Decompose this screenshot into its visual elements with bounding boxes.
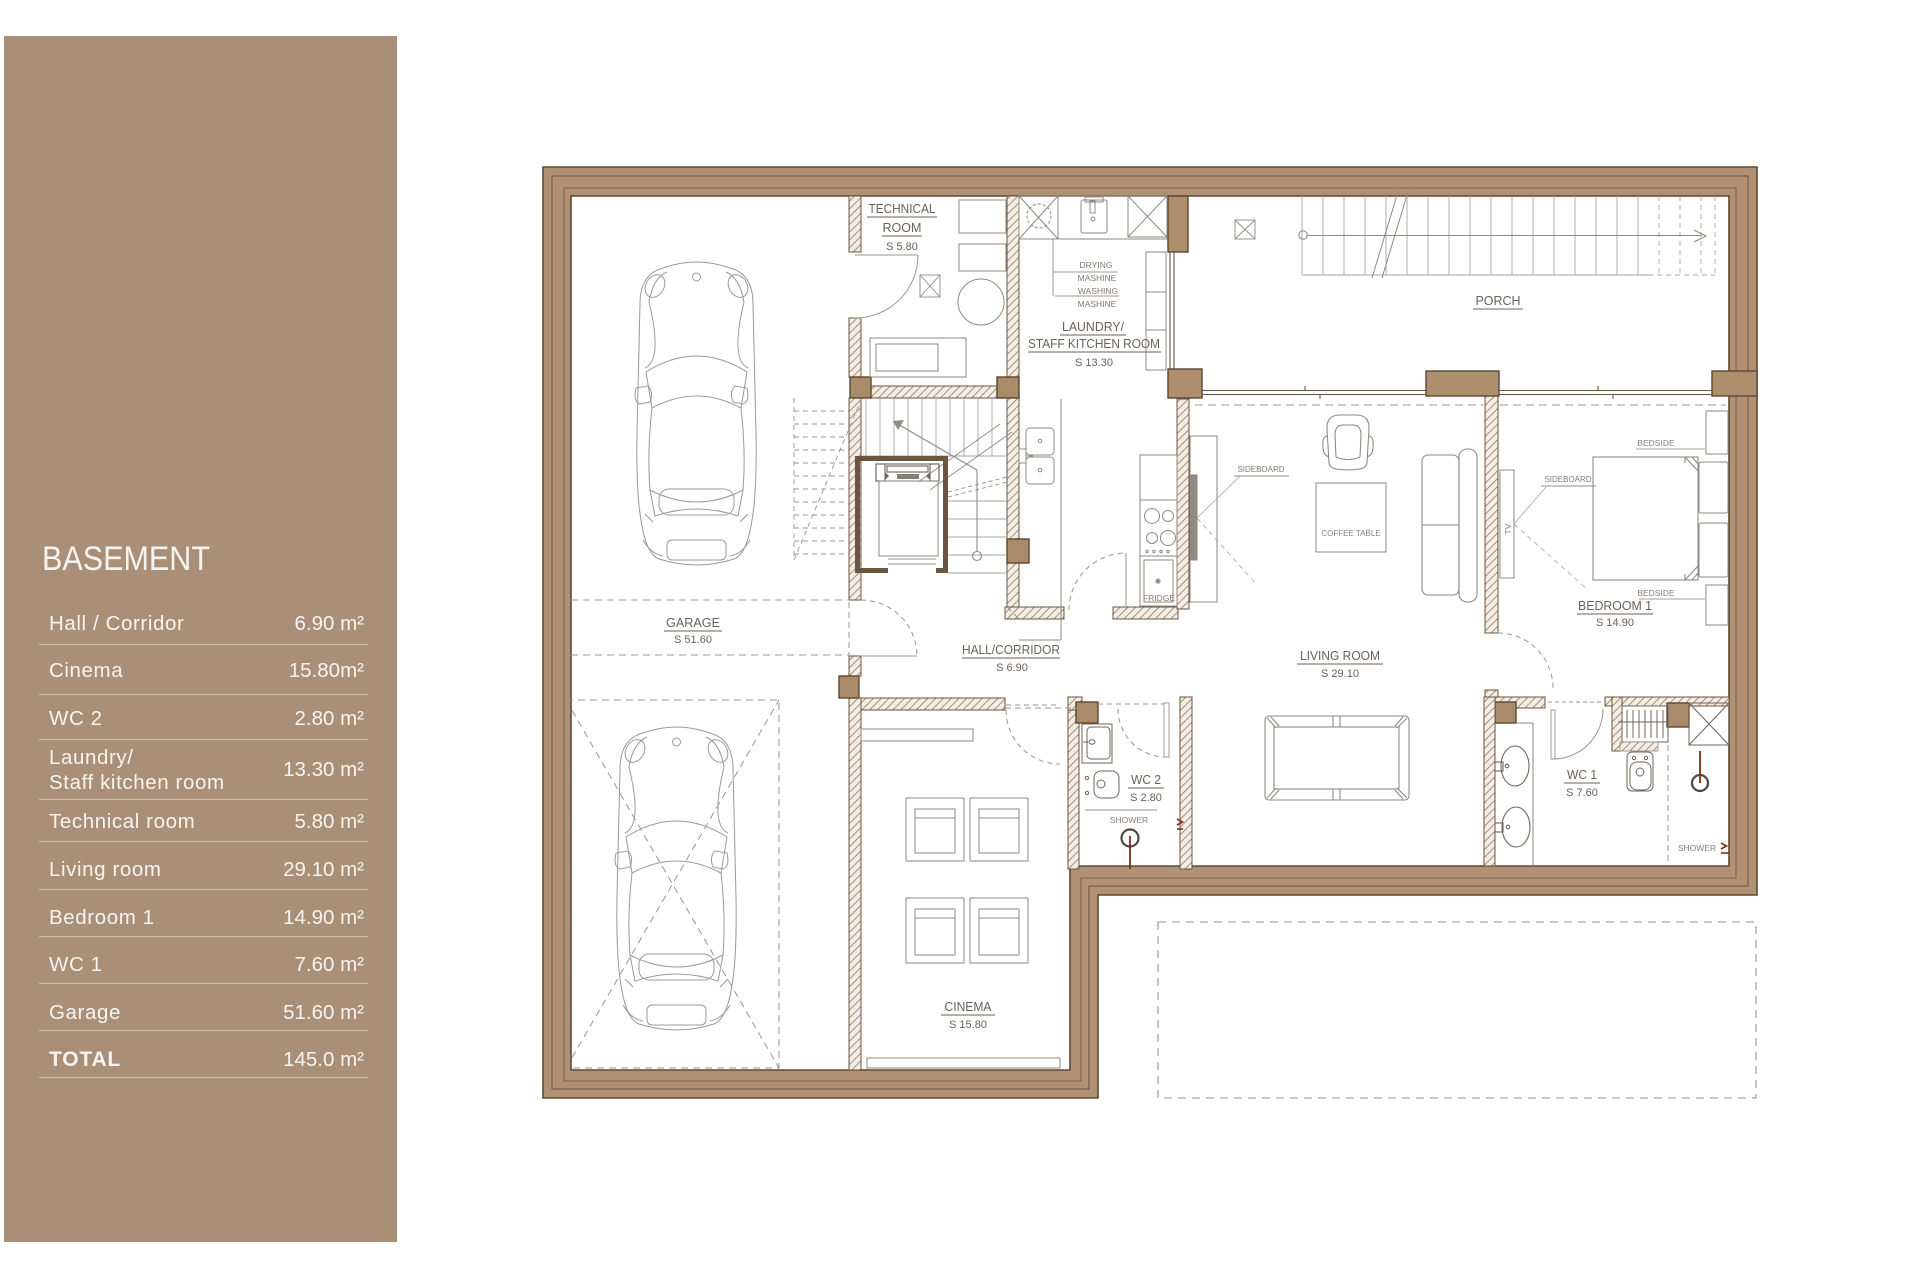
svg-text:WC 1: WC 1 bbox=[1567, 767, 1597, 782]
svg-text:MASHINE: MASHINE bbox=[1078, 273, 1117, 283]
svg-text:145.0 m²: 145.0 m² bbox=[283, 1048, 364, 1071]
svg-text:14.90 m²: 14.90 m² bbox=[283, 906, 364, 929]
svg-text:Bedroom 1: Bedroom 1 bbox=[49, 906, 155, 929]
svg-text:S 7.60: S 7.60 bbox=[1566, 787, 1598, 799]
svg-text:SIDEBOARD: SIDEBOARD bbox=[1544, 475, 1591, 484]
svg-text:STAFF KITCHEN ROOM: STAFF KITCHEN ROOM bbox=[1028, 336, 1160, 351]
svg-text:TECHNICAL: TECHNICAL bbox=[869, 201, 936, 216]
svg-text:WASHING: WASHING bbox=[1078, 286, 1118, 296]
svg-text:15.80m²: 15.80m² bbox=[289, 659, 364, 682]
svg-text:29.10 m²: 29.10 m² bbox=[283, 858, 364, 881]
svg-text:WC 2: WC 2 bbox=[49, 707, 103, 730]
svg-text:Laundry/: Laundry/ bbox=[49, 746, 134, 769]
svg-text:13.30 m²: 13.30 m² bbox=[283, 758, 364, 781]
svg-text:DRYING: DRYING bbox=[1080, 260, 1113, 270]
svg-text:Hall / Corridor: Hall / Corridor bbox=[49, 612, 184, 635]
svg-text:S 5.80: S 5.80 bbox=[886, 241, 918, 253]
svg-text:BEDROOM 1: BEDROOM 1 bbox=[1578, 598, 1652, 613]
svg-text:GARAGE: GARAGE bbox=[666, 615, 720, 630]
svg-text:S 15.80: S 15.80 bbox=[949, 1019, 987, 1031]
svg-text:SIDEBOARD: SIDEBOARD bbox=[1237, 465, 1284, 474]
svg-text:6.90 m²: 6.90 m² bbox=[295, 612, 365, 635]
svg-text:FRIDGE: FRIDGE bbox=[1143, 593, 1175, 603]
svg-text:ROOM: ROOM bbox=[883, 220, 922, 235]
svg-text:SHOWER: SHOWER bbox=[1110, 815, 1148, 825]
svg-text:BEDSIDE: BEDSIDE bbox=[1637, 438, 1675, 448]
svg-text:TOTAL: TOTAL bbox=[49, 1048, 121, 1071]
svg-text:SHOWER: SHOWER bbox=[1678, 843, 1716, 853]
svg-text:7.60 m²: 7.60 m² bbox=[295, 953, 365, 976]
svg-text:LAUNDRY/: LAUNDRY/ bbox=[1062, 319, 1124, 334]
svg-text:CINEMA: CINEMA bbox=[945, 999, 992, 1014]
svg-text:2.80 m²: 2.80 m² bbox=[295, 707, 365, 730]
svg-text:Staff kitchen room: Staff kitchen room bbox=[49, 771, 225, 794]
svg-text:WC 1: WC 1 bbox=[49, 953, 103, 976]
svg-text:S 51.60: S 51.60 bbox=[674, 634, 712, 646]
svg-text:S 29.10: S 29.10 bbox=[1321, 668, 1359, 680]
svg-text:Garage: Garage bbox=[49, 1001, 121, 1024]
svg-text:LIVING ROOM: LIVING ROOM bbox=[1300, 648, 1380, 663]
svg-text:TV: TV bbox=[1503, 523, 1513, 534]
svg-text:MASHINE: MASHINE bbox=[1078, 299, 1117, 309]
svg-text:COFFEE TABLE: COFFEE TABLE bbox=[1321, 529, 1380, 538]
svg-text:✺: ✺ bbox=[1155, 577, 1162, 586]
svg-text:51.60 m²: 51.60 m² bbox=[283, 1001, 364, 1024]
svg-text:HALL/CORRIDOR: HALL/CORRIDOR bbox=[962, 642, 1060, 657]
svg-text:Cinema: Cinema bbox=[49, 659, 123, 682]
svg-text:PORCH: PORCH bbox=[1476, 293, 1521, 308]
svg-text:Living room: Living room bbox=[49, 858, 162, 881]
svg-text:WC 2: WC 2 bbox=[1131, 772, 1161, 787]
svg-text:BEDSIDE: BEDSIDE bbox=[1637, 588, 1675, 598]
svg-text:5.80 m²: 5.80 m² bbox=[295, 810, 365, 833]
svg-text:S 13.30: S 13.30 bbox=[1075, 357, 1113, 369]
svg-text:Technical room: Technical room bbox=[49, 810, 195, 833]
svg-text:S 14.90: S 14.90 bbox=[1596, 617, 1634, 629]
svg-text:BASEMENT: BASEMENT bbox=[42, 540, 210, 578]
svg-text:S 2.80: S 2.80 bbox=[1130, 792, 1162, 804]
svg-text:S 6.90: S 6.90 bbox=[996, 662, 1028, 674]
